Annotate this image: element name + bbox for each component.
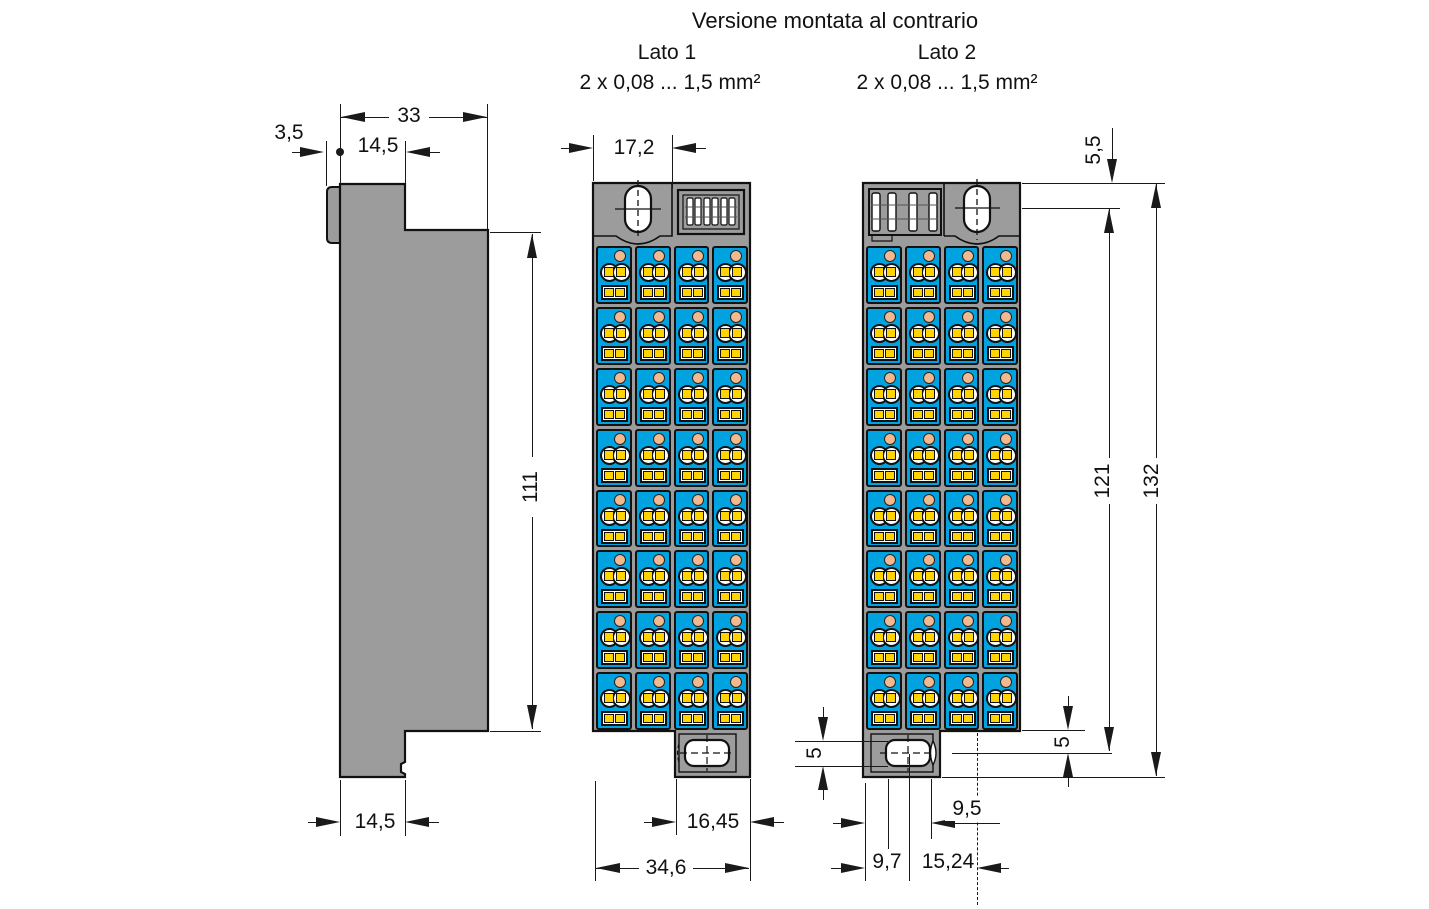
contact-icon: [886, 450, 896, 460]
dim-line: [1068, 777, 1069, 787]
marker-slot: [910, 650, 937, 665]
marker-slot: [871, 650, 898, 665]
contact-icon: [732, 632, 742, 642]
contact-icon: [616, 389, 626, 399]
marker-cell: [885, 532, 895, 541]
contact-icon: [732, 450, 742, 460]
arrow-icon: [841, 863, 865, 873]
marker-cell: [963, 532, 973, 541]
marker-slot: [679, 529, 706, 544]
test-port-icon: [692, 372, 704, 384]
marker-slot: [871, 468, 898, 483]
contact-icon: [925, 571, 935, 581]
terminal-module: [944, 429, 980, 487]
marker-cell: [963, 410, 973, 419]
test-port-icon: [1000, 554, 1012, 566]
test-port-icon: [884, 615, 896, 627]
marker-cell: [924, 532, 934, 541]
contact-icon: [604, 450, 614, 460]
terminal-module: [674, 307, 710, 365]
terminal-module: [905, 246, 941, 304]
contact-icon: [1002, 571, 1012, 581]
dim-label-33: 33: [389, 103, 429, 129]
test-port-icon: [962, 554, 974, 566]
marker-slot: [910, 346, 937, 361]
marker-slot: [910, 711, 937, 726]
marker-slot: [987, 346, 1014, 361]
marker-cell: [924, 592, 934, 601]
contact-icon: [682, 571, 692, 581]
test-port-icon: [1000, 250, 1012, 262]
marker-slot: [949, 285, 976, 300]
marker-cell: [654, 653, 664, 662]
contact-icon: [732, 693, 742, 703]
marker-cell: [654, 410, 664, 419]
dim-line: [823, 707, 824, 717]
arrow-icon: [977, 863, 1001, 873]
contact-icon: [874, 389, 884, 399]
test-port-icon: [653, 372, 665, 384]
test-port-icon: [653, 311, 665, 323]
marker-slot: [949, 589, 976, 604]
ext-line: [909, 754, 910, 881]
marker-cell: [913, 471, 923, 480]
contact-icon: [604, 693, 614, 703]
arrow-icon: [406, 147, 430, 157]
marker-slot: [949, 650, 976, 665]
terminal-module: [905, 550, 941, 608]
marker-cell: [720, 592, 730, 601]
contact-icon: [643, 267, 653, 277]
marker-slot: [601, 346, 628, 361]
test-port-icon: [962, 676, 974, 688]
test-port-icon: [1000, 615, 1012, 627]
marker-cell: [643, 471, 653, 480]
test-port-icon: [962, 615, 974, 627]
marker-cell: [693, 349, 703, 358]
contact-icon: [655, 389, 665, 399]
marker-cell: [604, 349, 614, 358]
marker-slot: [640, 529, 667, 544]
test-port-icon: [692, 554, 704, 566]
marker-cell: [963, 471, 973, 480]
ext-line: [1022, 183, 1165, 184]
terminal-module: [905, 368, 941, 426]
test-port-icon: [692, 311, 704, 323]
marker-cell: [1001, 410, 1011, 419]
marker-cell: [952, 288, 962, 297]
terminal-module: [635, 429, 671, 487]
marker-cell: [990, 471, 1000, 480]
marker-cell: [952, 714, 962, 723]
technical-drawing: Versione montata al contrario Lato 1 2 x…: [0, 0, 1429, 909]
marker-slot: [871, 529, 898, 544]
marker-cell: [604, 288, 614, 297]
marker-cell: [720, 410, 730, 419]
contact-icon: [964, 389, 974, 399]
contact-icon: [874, 450, 884, 460]
marker-cell: [615, 288, 625, 297]
ext-line: [326, 141, 327, 186]
contact-icon: [643, 693, 653, 703]
arrow-icon: [405, 817, 429, 827]
marker-slot: [717, 285, 744, 300]
marker-cell: [654, 532, 664, 541]
contact-icon: [694, 632, 704, 642]
test-port-icon: [923, 494, 935, 506]
test-port-icon: [1000, 494, 1012, 506]
contact-icon: [604, 632, 614, 642]
contact-icon: [886, 267, 896, 277]
test-port-icon: [962, 250, 974, 262]
marker-cell: [693, 410, 703, 419]
ext-line: [750, 779, 751, 881]
marker-cell: [874, 410, 884, 419]
arrow-icon: [527, 234, 537, 258]
ext-line: [490, 232, 541, 233]
test-port-icon: [884, 372, 896, 384]
terminal-module: [905, 429, 941, 487]
terminal-module: [635, 307, 671, 365]
side-profile-view: [327, 184, 488, 777]
ext-line: [942, 777, 1165, 778]
ext-line: [490, 731, 541, 732]
test-port-icon: [692, 433, 704, 445]
dim-label-5-5: 5,5: [1083, 128, 1105, 172]
terminal-module: [982, 672, 1018, 730]
test-port-icon: [884, 311, 896, 323]
contact-icon: [964, 511, 974, 521]
contact-icon: [964, 267, 974, 277]
marker-cell: [720, 653, 730, 662]
contact-icon: [643, 632, 653, 642]
dim-line: [831, 868, 841, 869]
test-port-icon: [923, 433, 935, 445]
marker-cell: [913, 349, 923, 358]
marker-cell: [963, 288, 973, 297]
marker-cell: [913, 592, 923, 601]
marker-slot: [910, 285, 937, 300]
contact-icon: [925, 328, 935, 338]
contact-icon: [925, 450, 935, 460]
contact-icon: [616, 571, 626, 581]
terminal-module: [635, 368, 671, 426]
ext-line: [931, 779, 932, 839]
marker-cell: [990, 288, 1000, 297]
ext-line: [888, 779, 889, 855]
arrow-icon: [1104, 209, 1114, 233]
dim-label-5-right: 5: [1053, 729, 1073, 755]
dim-label-14-5-top: 14,5: [352, 133, 404, 159]
marker-cell: [1001, 471, 1011, 480]
test-port-icon: [692, 494, 704, 506]
contact-icon: [913, 632, 923, 642]
marker-slot: [871, 407, 898, 422]
contact-icon: [616, 632, 626, 642]
marker-cell: [952, 471, 962, 480]
test-port-icon: [923, 311, 935, 323]
contact-icon: [952, 328, 962, 338]
ext-line: [952, 753, 1112, 754]
dim-line: [823, 790, 824, 800]
marker-cell: [1001, 349, 1011, 358]
contact-icon: [655, 632, 665, 642]
marker-slot: [679, 711, 706, 726]
test-port-icon: [962, 433, 974, 445]
marker-cell: [682, 471, 692, 480]
contact-icon: [925, 632, 935, 642]
contact-icon: [682, 389, 692, 399]
marker-slot: [601, 711, 628, 726]
marker-cell: [874, 592, 884, 601]
marker-cell: [615, 532, 625, 541]
arrow-icon: [1151, 184, 1161, 208]
terminal-grid-lato2: [866, 246, 1018, 730]
marker-cell: [643, 714, 653, 723]
ext-line: [340, 780, 341, 836]
marker-slot: [679, 285, 706, 300]
marker-cell: [1001, 532, 1011, 541]
test-port-icon: [962, 311, 974, 323]
contact-icon: [952, 389, 962, 399]
terminal-module: [635, 490, 671, 548]
arrow-icon: [672, 143, 696, 153]
marker-cell: [682, 410, 692, 419]
contact-icon: [655, 267, 665, 277]
marker-slot: [717, 711, 744, 726]
marker-cell: [874, 714, 884, 723]
terminal-module: [982, 307, 1018, 365]
marker-cell: [682, 288, 692, 297]
dim-line: [429, 822, 439, 823]
arrow-icon: [725, 863, 749, 873]
marker-cell: [693, 592, 703, 601]
test-port-icon: [692, 676, 704, 688]
marker-cell: [963, 349, 973, 358]
contact-icon: [643, 450, 653, 460]
arrow-icon: [750, 817, 774, 827]
test-port-icon: [653, 494, 665, 506]
ext-line: [405, 780, 406, 836]
terminal-module: [866, 490, 902, 548]
dim-label-121: 121: [1091, 458, 1115, 504]
test-port-icon: [692, 615, 704, 627]
marker-cell: [1001, 653, 1011, 662]
marker-slot: [910, 468, 937, 483]
marker-slot: [987, 589, 1014, 604]
dim-dot: [336, 148, 344, 156]
test-port-icon: [730, 554, 742, 566]
test-port-icon: [923, 250, 935, 262]
test-port-icon: [962, 494, 974, 506]
arrow-icon: [652, 817, 676, 827]
terminal-module: [596, 490, 632, 548]
marker-cell: [913, 714, 923, 723]
marker-cell: [924, 714, 934, 723]
dim-label-34-6: 34,6: [639, 854, 693, 882]
marker-cell: [1001, 592, 1011, 601]
terminal-module: [982, 368, 1018, 426]
contact-icon: [874, 267, 884, 277]
test-port-icon: [730, 676, 742, 688]
dim-label-132: 132: [1140, 458, 1164, 504]
contact-icon: [886, 693, 896, 703]
terminal-module: [712, 246, 748, 304]
contact-icon: [655, 328, 665, 338]
terminal-module: [982, 246, 1018, 304]
contact-icon: [694, 389, 704, 399]
marker-cell: [693, 288, 703, 297]
dim-line: [774, 822, 784, 823]
arrow-icon: [341, 112, 365, 122]
marker-slot: [987, 285, 1014, 300]
marker-cell: [874, 653, 884, 662]
ext-line: [795, 766, 888, 767]
dim-label-17-2: 17,2: [609, 134, 659, 162]
terminal-module: [905, 307, 941, 365]
contact-icon: [732, 267, 742, 277]
terminal-module: [596, 429, 632, 487]
contact-icon: [886, 632, 896, 642]
marker-slot: [601, 650, 628, 665]
terminal-module: [674, 672, 710, 730]
test-port-icon: [614, 250, 626, 262]
dim-label-3-5: 3,5: [267, 120, 311, 146]
arrow-icon: [1151, 752, 1161, 776]
marker-slot: [910, 589, 937, 604]
contact-icon: [694, 267, 704, 277]
contact-icon: [886, 328, 896, 338]
test-port-icon: [884, 250, 896, 262]
arrow-icon: [463, 112, 487, 122]
terminal-module: [596, 246, 632, 304]
dim-line: [1001, 868, 1009, 869]
contact-icon: [925, 511, 935, 521]
terminal-module: [712, 672, 748, 730]
marker-cell: [924, 410, 934, 419]
marker-cell: [874, 532, 884, 541]
marker-cell: [643, 592, 653, 601]
marker-slot: [987, 407, 1014, 422]
test-port-icon: [730, 311, 742, 323]
contact-icon: [964, 693, 974, 703]
contact-icon: [990, 511, 1000, 521]
contact-icon: [913, 389, 923, 399]
marker-cell: [1001, 714, 1011, 723]
terminal-module: [866, 429, 902, 487]
test-port-icon: [614, 433, 626, 445]
marker-cell: [1001, 288, 1011, 297]
terminal-grid-lato1: [596, 246, 748, 730]
marker-cell: [963, 714, 973, 723]
marker-cell: [604, 714, 614, 723]
terminal-module: [866, 672, 902, 730]
contact-icon: [1002, 267, 1012, 277]
arrow-icon: [1063, 753, 1073, 777]
marker-slot: [640, 407, 667, 422]
marker-cell: [913, 532, 923, 541]
contact-icon: [694, 693, 704, 703]
dim-label-5-left: 5: [805, 740, 825, 766]
arrow-icon: [1104, 727, 1114, 751]
test-port-icon: [653, 554, 665, 566]
contact-icon: [682, 511, 692, 521]
contact-icon: [1002, 632, 1012, 642]
marker-cell: [731, 410, 741, 419]
contact-icon: [1002, 693, 1012, 703]
contact-icon: [604, 571, 614, 581]
marker-cell: [682, 532, 692, 541]
ext-line: [865, 783, 866, 881]
marker-cell: [615, 714, 625, 723]
test-port-icon: [962, 372, 974, 384]
contact-icon: [990, 389, 1000, 399]
marker-slot: [949, 529, 976, 544]
contact-icon: [952, 693, 962, 703]
contact-icon: [732, 389, 742, 399]
ext-line: [676, 779, 677, 835]
test-port-icon: [923, 372, 935, 384]
dim-label-15-24: 15,24: [920, 849, 976, 875]
test-port-icon: [653, 250, 665, 262]
contact-icon: [694, 571, 704, 581]
contact-icon: [720, 328, 730, 338]
test-port-icon: [614, 615, 626, 627]
marker-slot: [717, 650, 744, 665]
marker-cell: [952, 349, 962, 358]
contact-icon: [913, 450, 923, 460]
arrow-icon: [316, 817, 340, 827]
terminal-module: [674, 368, 710, 426]
marker-cell: [654, 349, 664, 358]
contact-icon: [925, 267, 935, 277]
arrow-icon: [300, 147, 324, 157]
marker-cell: [885, 410, 895, 419]
contact-icon: [964, 571, 974, 581]
terminal-module: [905, 611, 941, 669]
marker-cell: [682, 592, 692, 601]
marker-cell: [885, 653, 895, 662]
marker-cell: [693, 653, 703, 662]
contact-icon: [990, 328, 1000, 338]
marker-cell: [885, 288, 895, 297]
marker-slot: [949, 711, 976, 726]
marker-cell: [963, 592, 973, 601]
marker-cell: [720, 349, 730, 358]
test-port-icon: [1000, 676, 1012, 688]
marker-cell: [693, 471, 703, 480]
marker-cell: [604, 592, 614, 601]
contact-icon: [886, 511, 896, 521]
contact-icon: [682, 450, 692, 460]
marker-slot: [717, 468, 744, 483]
contact-icon: [964, 328, 974, 338]
contact-icon: [643, 328, 653, 338]
dim-line: [1068, 696, 1069, 706]
marker-cell: [952, 592, 962, 601]
marker-cell: [885, 471, 895, 480]
marker-cell: [654, 471, 664, 480]
contact-icon: [616, 693, 626, 703]
dim-label-14-5-bottom: 14,5: [349, 808, 401, 836]
marker-cell: [952, 532, 962, 541]
arrow-icon: [818, 717, 828, 741]
terminal-module: [866, 550, 902, 608]
marker-slot: [679, 468, 706, 483]
contact-icon: [732, 328, 742, 338]
marker-slot: [640, 285, 667, 300]
arrow-icon: [569, 143, 593, 153]
